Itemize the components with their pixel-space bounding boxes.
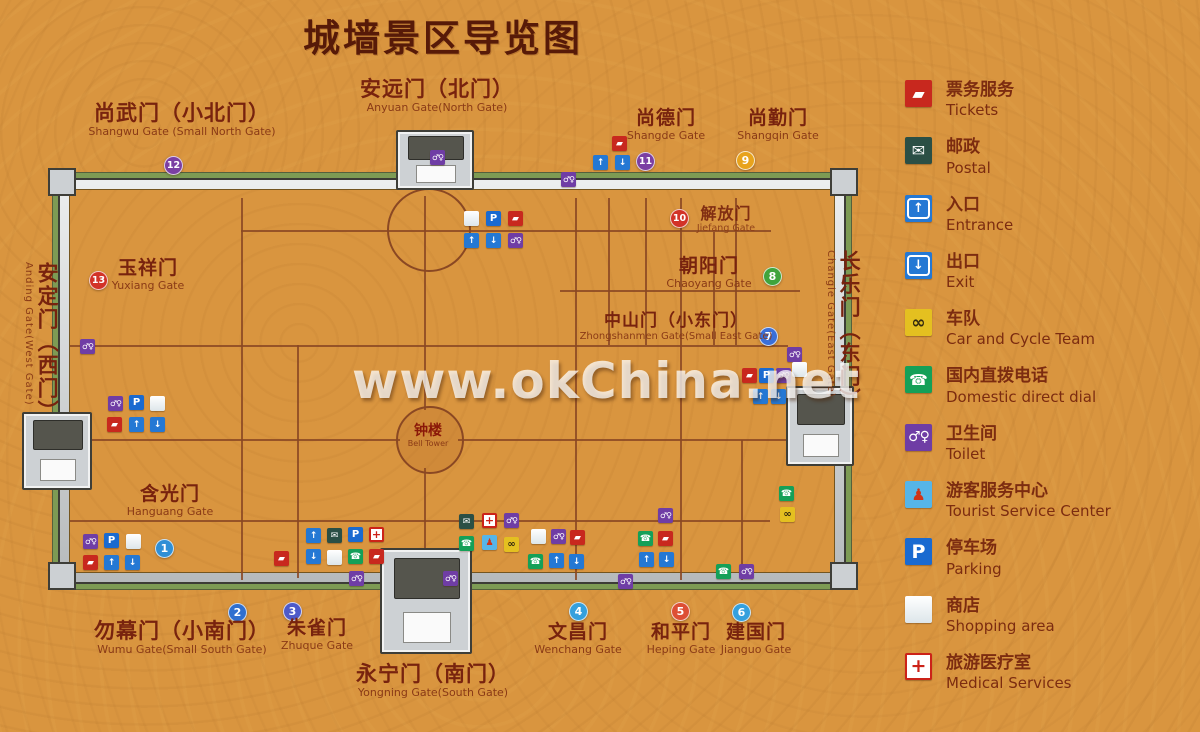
gate-marker-6: 6 [732, 603, 751, 622]
shangwu-gate-label: 尚武门（小北门）Shangwu Gate (Small North Gate) [88, 102, 275, 138]
legend-label-cn: 票务服务 [946, 80, 1014, 101]
entrance-icon: ↑ [593, 155, 608, 170]
legend-label-en: Entrance [946, 216, 1013, 236]
ticket-icon: ▰ [612, 136, 627, 151]
entrance-icon: ↑ [306, 528, 321, 543]
south-gate-building [380, 548, 472, 654]
corner-tower-ne [830, 168, 858, 196]
toilet-icon: ♂♀ [905, 424, 932, 451]
road [458, 439, 788, 441]
legend-item-exit: ↓出口Exit [905, 252, 1195, 309]
exit-icon: ↓ [125, 555, 140, 570]
legend-label-cn: 车队 [946, 309, 1095, 330]
shop-icon [126, 534, 141, 549]
road [560, 290, 800, 292]
exit-icon: ↓ [659, 552, 674, 567]
shangqin-gate-name-cn: 尚勤门 [737, 108, 819, 129]
zhongshan-gate-name-cn: 中山门（小东门） [580, 312, 773, 331]
exit-icon: ↓ [615, 155, 630, 170]
jianguo-gate-name-cn: 建国门 [721, 622, 792, 643]
road [70, 439, 400, 441]
shangqin-gate-name-en: Shangqin Gate [737, 129, 819, 142]
road [70, 345, 788, 347]
anyuan-gate-name-cn: 安远门（北门） [360, 78, 514, 101]
exit-icon: ↓ [569, 554, 584, 569]
toilet-icon: ♂♀ [658, 508, 673, 523]
jiefang-gate-name-cn: 解放门 [697, 205, 755, 223]
gate-marker-1: 1 [155, 539, 174, 558]
legend-label-cn: 国内直拨电话 [946, 366, 1096, 387]
toilet-icon: ♂♀ [349, 571, 364, 586]
toilet-icon: ♂♀ [551, 529, 566, 544]
wumu-gate-name-cn: 勿幕门（小南门） [94, 620, 270, 643]
phone-icon: ☎ [459, 536, 474, 551]
toilet-icon: ♂♀ [443, 571, 458, 586]
ticket-icon: ▰ [905, 80, 932, 107]
ticket-icon: ▰ [83, 555, 98, 570]
legend-label-en: Tickets [946, 101, 1014, 121]
shop-icon [905, 596, 932, 623]
exit-icon: ↓ [486, 233, 501, 248]
legend-label-cn: 入口 [946, 195, 1013, 216]
legend-item-cycle: ∞车队Car and Cycle Team [905, 309, 1195, 366]
yongning-gate-name-en: Yongning Gate(South Gate) [356, 686, 510, 699]
hanguang-gate-name-en: Hanguang Gate [127, 505, 213, 518]
legend-item-parking: P停车场Parking [905, 538, 1195, 595]
legend-label-en: Tourist Service Center [946, 502, 1111, 522]
gate-marker-10: 10 [670, 209, 689, 228]
legend-label-cn: 停车场 [946, 538, 1002, 559]
shangqin-gate-label: 尚勤门Shangqin Gate [737, 108, 819, 142]
shangde-gate-label: 尚德门Shangde Gate [627, 108, 705, 142]
legend-label-en: Toilet [946, 445, 997, 465]
wumu-gate-name-en: Wumu Gate(Small South Gate) [94, 643, 270, 656]
postal-icon: ✉ [905, 137, 932, 164]
toilet-icon: ♂♀ [618, 574, 633, 589]
toilet-icon: ♂♀ [108, 396, 123, 411]
toilet-icon: ♂♀ [80, 339, 95, 354]
yuxiang-gate-name-en: Yuxiang Gate [112, 279, 185, 292]
legend-label-cn: 邮政 [946, 137, 991, 158]
gate-marker-11: 11 [636, 152, 655, 171]
ticket-icon: ▰ [369, 549, 384, 564]
road [241, 198, 243, 580]
bicycle-icon: ∞ [905, 309, 932, 336]
jianguo-gate-label: 建国门Jianguo Gate [721, 622, 792, 656]
jiefang-gate-name-en: Jiefang Gate [697, 223, 755, 234]
ticket-icon: ▰ [274, 551, 289, 566]
entrance-icon: ↑ [464, 233, 479, 248]
wenchang-gate-label: 文昌门Wenchang Gate [534, 622, 622, 656]
toilet-icon: ♂♀ [561, 172, 576, 187]
medical-icon: + [905, 653, 932, 680]
toilet-icon: ♂♀ [83, 534, 98, 549]
yongning-gate-name-cn: 永宁门（南门） [356, 663, 510, 686]
corner-tower-nw [48, 168, 76, 196]
zhuque-gate-label: 朱雀门Zhuque Gate [281, 618, 353, 652]
exit-icon: ↓ [905, 252, 932, 279]
shop-icon [150, 396, 165, 411]
postal-icon: ✉ [327, 528, 342, 543]
legend-item-tickets: ▰票务服务Tickets [905, 80, 1195, 137]
guide-map: 城墙景区导览图 [0, 0, 1200, 732]
road [741, 440, 743, 580]
postal-icon: ✉ [459, 514, 474, 529]
chaoyang-gate-label: 朝阳门Chaoyang Gate [666, 256, 751, 290]
legend-label-en: Domestic direct dial [946, 388, 1096, 408]
corner-tower-sw [48, 562, 76, 590]
phone-icon: ☎ [528, 554, 543, 569]
heping-gate-name-en: Heping Gate [647, 643, 716, 656]
toilet-icon: ♂♀ [430, 150, 445, 165]
legend-item-postal: ✉邮政Postal [905, 137, 1195, 194]
tourist-service-icon: ♟ [482, 535, 497, 550]
zhuque-gate-name-cn: 朱雀门 [281, 618, 353, 639]
legend-label-en: Parking [946, 560, 1002, 580]
legend-label-en: Postal [946, 159, 991, 179]
entrance-icon: ↑ [129, 417, 144, 432]
legend-label-en: Medical Services [946, 674, 1072, 694]
legend-label-cn: 旅游医疗室 [946, 653, 1072, 674]
anyuan-gate-name-en: Anyuan Gate(North Gate) [360, 101, 514, 114]
zhongshan-gate-name-en: Zhongshanmen Gate(Small East Gate) [580, 331, 773, 343]
legend-label-cn: 游客服务中心 [946, 481, 1111, 502]
page-title: 城墙景区导览图 [303, 8, 583, 62]
medical-icon: + [369, 527, 384, 542]
yuxiang-gate-label: 玉祥门Yuxiang Gate [112, 258, 185, 292]
legend-label-cn: 商店 [946, 596, 1055, 617]
ticket-icon: ▰ [658, 531, 673, 546]
shangde-gate-name-en: Shangde Gate [627, 129, 705, 142]
north-roundabout [387, 188, 471, 272]
heping-gate-name-cn: 和平门 [647, 622, 716, 643]
anding-gate-name-en: Anding Gate(West Gate) [22, 262, 34, 406]
gate-marker-13: 13 [89, 271, 108, 290]
tourist-service-icon: ♟ [905, 481, 932, 508]
zhuque-gate-name-en: Zhuque Gate [281, 639, 353, 652]
hanguang-gate-label: 含光门Hanguang Gate [127, 484, 213, 518]
corner-tower-se [830, 562, 858, 590]
watermark: www.okChina.net [352, 352, 860, 410]
yongning-gate-label: 永宁门（南门）Yongning Gate(South Gate) [356, 663, 510, 699]
road [297, 345, 299, 578]
gate-marker-12: 12 [164, 156, 183, 175]
shangwu-gate-name-en: Shangwu Gate (Small North Gate) [88, 125, 275, 138]
wenchang-gate-name-cn: 文昌门 [534, 622, 622, 643]
heping-gate-label: 和平门Heping Gate [647, 622, 716, 656]
gate-marker-8: 8 [763, 267, 782, 286]
legend-item-tourist: ♟游客服务中心Tourist Service Center [905, 481, 1195, 538]
shop-icon [531, 529, 546, 544]
shop-icon [464, 211, 479, 226]
bell-tower-name-en: Bell Tower [408, 439, 449, 448]
bell-tower-label: 钟楼 Bell Tower [408, 424, 449, 448]
entrance-icon: ↑ [905, 195, 932, 222]
legend-label-cn: 卫生间 [946, 424, 997, 445]
anding-gate-label: Anding Gate(West Gate)安定门（西门） [22, 262, 58, 423]
hanguang-gate-name-cn: 含光门 [127, 484, 213, 505]
bell-tower-name-cn: 钟楼 [408, 424, 449, 439]
parking-icon: P [348, 527, 363, 542]
legend-item-entrance: ↑入口Entrance [905, 195, 1195, 252]
toilet-icon: ♂♀ [508, 233, 523, 248]
medical-icon: + [482, 513, 497, 528]
road [241, 230, 771, 232]
bicycle-icon: ∞ [780, 507, 795, 522]
toilet-icon: ♂♀ [504, 513, 519, 528]
parking-icon: P [129, 395, 144, 410]
legend-item-shop: 商店Shopping area [905, 596, 1195, 653]
parking-icon: P [486, 211, 501, 226]
entrance-icon: ↑ [104, 555, 119, 570]
entrance-icon: ↑ [549, 553, 564, 568]
shangwu-gate-name-cn: 尚武门（小北门） [88, 102, 275, 125]
exit-icon: ↓ [306, 549, 321, 564]
west-gate-building [22, 412, 92, 490]
shangde-gate-name-cn: 尚德门 [627, 108, 705, 129]
jiefang-gate-label: 解放门Jiefang Gate [697, 205, 755, 234]
ticket-icon: ▰ [570, 530, 585, 545]
chaoyang-gate-name-cn: 朝阳门 [666, 256, 751, 277]
legend-label-cn: 出口 [946, 252, 980, 273]
phone-icon: ☎ [905, 366, 932, 393]
shop-icon [327, 550, 342, 565]
entrance-icon: ↑ [639, 552, 654, 567]
gate-marker-4: 4 [569, 602, 588, 621]
anyuan-gate-label: 安远门（北门）Anyuan Gate(North Gate) [360, 78, 514, 114]
parking-icon: P [104, 533, 119, 548]
wenchang-gate-name-en: Wenchang Gate [534, 643, 622, 656]
legend-item-phone: ☎国内直拨电话Domestic direct dial [905, 366, 1195, 423]
wumu-gate-label: 勿幕门（小南门）Wumu Gate(Small South Gate) [94, 620, 270, 656]
phone-icon: ☎ [716, 564, 731, 579]
zhongshan-gate-label: 中山门（小东门）Zhongshanmen Gate(Small East Gat… [580, 312, 773, 343]
ticket-icon: ▰ [107, 417, 122, 432]
exit-icon: ↓ [150, 417, 165, 432]
legend-item-medical: +旅游医疗室Medical Services [905, 653, 1195, 710]
phone-icon: ☎ [348, 549, 363, 564]
parking-icon: P [905, 538, 932, 565]
chaoyang-gate-name-en: Chaoyang Gate [666, 277, 751, 290]
ticket-icon: ▰ [508, 211, 523, 226]
legend-label-en: Car and Cycle Team [946, 330, 1095, 350]
gate-marker-5: 5 [671, 602, 690, 621]
toilet-icon: ♂♀ [739, 564, 754, 579]
legend-label-en: Exit [946, 273, 980, 293]
legend-item-toilet: ♂♀卫生间Toilet [905, 424, 1195, 481]
jianguo-gate-name-en: Jianguo Gate [721, 643, 792, 656]
phone-icon: ☎ [779, 486, 794, 501]
bicycle-icon: ∞ [504, 537, 519, 552]
anding-gate-name-cn: 安定门（西门） [35, 262, 58, 423]
legend: ▰票务服务Tickets✉邮政Postal↑入口Entrance↓出口Exit∞… [905, 80, 1195, 710]
phone-icon: ☎ [638, 531, 653, 546]
yuxiang-gate-name-cn: 玉祥门 [112, 258, 185, 279]
gate-marker-9: 9 [736, 151, 755, 170]
legend-label-en: Shopping area [946, 617, 1055, 637]
